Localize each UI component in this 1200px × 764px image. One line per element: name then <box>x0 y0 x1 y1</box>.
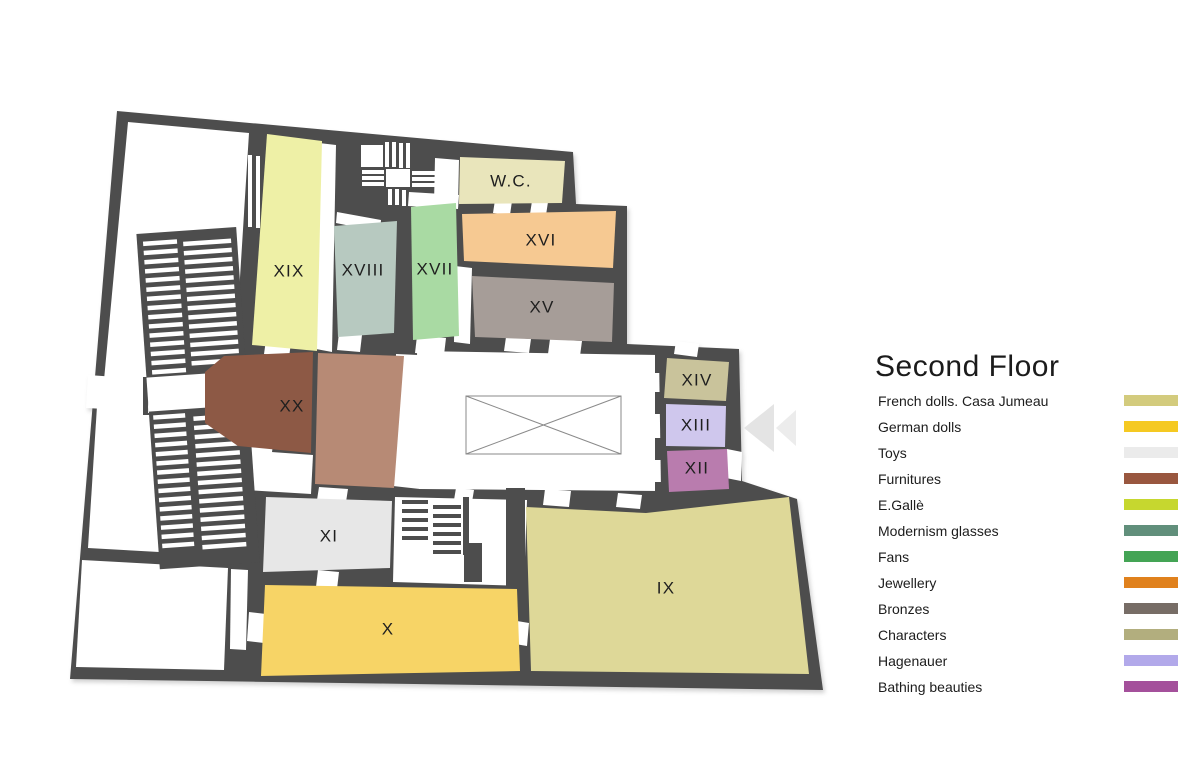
room-xi-label: XI <box>320 526 338 545</box>
legend-item: German dolls <box>875 418 1187 436</box>
legend-item: French dolls. Casa Jumeau <box>875 392 1187 410</box>
legend-item: Toys <box>875 444 1187 462</box>
legend-item-label: French dolls. Casa Jumeau <box>878 392 1048 410</box>
room-xiii-label: XIII <box>681 415 711 434</box>
room-xiv-label: XIV <box>681 370 712 389</box>
room-xv-label: XV <box>529 297 554 316</box>
floor-nav-arrows[interactable] <box>744 404 796 452</box>
room-xviii-label: XVIII <box>342 260 385 279</box>
legend-item: E.Gallè <box>875 496 1187 514</box>
legend-color-swatch <box>1124 551 1178 562</box>
legend-item-label: Toys <box>878 444 907 462</box>
floor-plan-page: XIXXVIIIXVIIXVIXVW.C.XXXIVXIIIXIIXIXIX S… <box>0 0 1200 764</box>
arrow-left-icon[interactable] <box>776 410 796 446</box>
legend-item: Bronzes <box>875 600 1187 618</box>
legend-color-swatch <box>1124 395 1178 406</box>
legend-item-label: German dolls <box>878 418 961 436</box>
legend-item-label: Jewellery <box>878 574 936 592</box>
legend-color-swatch <box>1124 499 1178 510</box>
room-xvi-label: XVI <box>525 230 556 249</box>
legend-item: Characters <box>875 626 1187 644</box>
legend-color-swatch <box>1124 421 1178 432</box>
legend-color-swatch <box>1124 603 1178 614</box>
legend-item-label: Fans <box>878 548 909 566</box>
legend-color-swatch <box>1124 525 1178 536</box>
legend-item-label: Modernism glasses <box>878 522 999 540</box>
room-xix-label: XIX <box>273 261 304 280</box>
room-ix-label: IX <box>657 578 675 597</box>
room-xvii-label: XVII <box>417 259 454 278</box>
legend-title: Second Floor <box>875 350 1187 384</box>
legend-item-label: Furnitures <box>878 470 941 488</box>
arrow-left-icon[interactable] <box>744 404 774 452</box>
legend-color-swatch <box>1124 629 1178 640</box>
legend-color-swatch <box>1124 577 1178 588</box>
room-wc-label: W.C. <box>490 171 532 190</box>
legend-item: Jewellery <box>875 574 1187 592</box>
legend-item-label: Characters <box>878 626 946 644</box>
room-x-label: X <box>382 619 395 638</box>
legend-item-label: Hagenauer <box>878 652 947 670</box>
legend-item: Hagenauer <box>875 652 1187 670</box>
legend-item-label: Bathing beauties <box>878 678 982 696</box>
legend-color-swatch <box>1124 681 1178 692</box>
legend-color-swatch <box>1124 473 1178 484</box>
room-xii-label: XII <box>685 458 709 477</box>
legend-item-label: E.Gallè <box>878 496 924 514</box>
legend-item-label: Bronzes <box>878 600 929 618</box>
legend-color-swatch <box>1124 447 1178 458</box>
legend-item: Bathing beauties <box>875 678 1187 696</box>
room-xx-label: XX <box>279 396 304 415</box>
legend-item: Furnitures <box>875 470 1187 488</box>
legend-item: Modernism glasses <box>875 522 1187 540</box>
room-xx-annex <box>315 353 404 488</box>
legend: Second Floor French dolls. Casa JumeauGe… <box>875 350 1187 710</box>
legend-color-swatch <box>1124 655 1178 666</box>
legend-item: Fans <box>875 548 1187 566</box>
